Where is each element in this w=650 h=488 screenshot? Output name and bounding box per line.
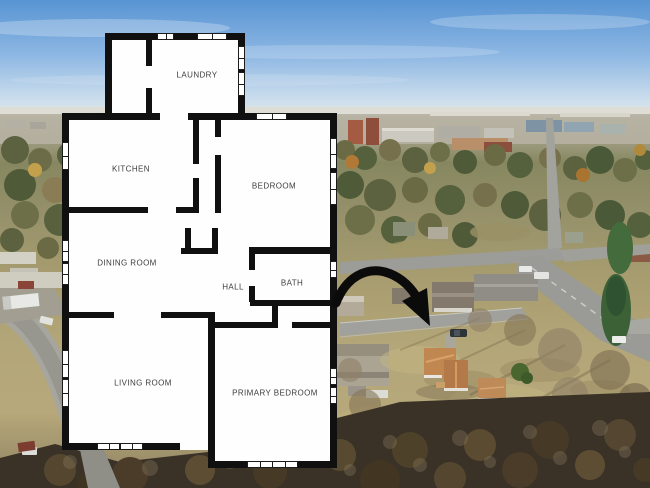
listing-composite-image: LAUNDRY KITCHEN BEDROOM DINING ROOM HALL… <box>0 0 650 488</box>
location-arrow-icon <box>0 0 650 488</box>
